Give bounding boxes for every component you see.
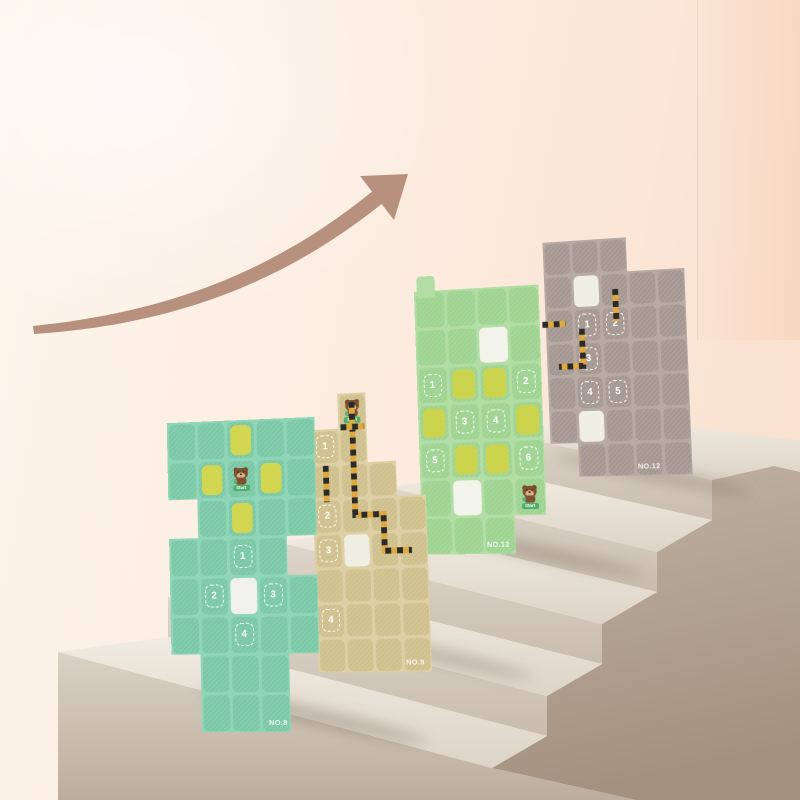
board-cutout bbox=[287, 535, 318, 575]
board-cell bbox=[201, 654, 231, 693]
board-number-label: NO.8 bbox=[269, 718, 288, 727]
numbered-target-cell: 5 bbox=[425, 449, 444, 472]
board-cell: Start bbox=[226, 459, 256, 499]
start-label: Start bbox=[344, 416, 361, 423]
board-cell bbox=[343, 567, 372, 603]
board-cell bbox=[196, 421, 226, 461]
board-cutout bbox=[396, 459, 426, 496]
board-cell bbox=[507, 284, 540, 324]
numbered-target-cell: 2 bbox=[204, 584, 223, 607]
board-cell bbox=[605, 408, 635, 443]
board-cell bbox=[259, 614, 290, 654]
board-cell bbox=[477, 324, 510, 364]
board-cell: 4 bbox=[575, 375, 604, 410]
numbered-target-cell: 3 bbox=[455, 410, 474, 434]
board-cell bbox=[511, 400, 544, 439]
board-cell bbox=[372, 601, 402, 637]
product-photo-scene: 12345NO.12 123456StartNO.12 Start1234NO.… bbox=[0, 0, 800, 800]
numbered-target-cell: 4 bbox=[486, 409, 505, 433]
board-cell bbox=[599, 271, 628, 307]
board-cell: Start bbox=[513, 476, 546, 515]
puzzle-board-3: 123456StartNO.12 bbox=[414, 284, 548, 554]
board-cell bbox=[288, 574, 319, 614]
board-cell bbox=[259, 654, 290, 693]
board-cell bbox=[400, 565, 430, 601]
board-cutout bbox=[515, 515, 548, 554]
board-cell bbox=[284, 417, 315, 457]
board-cutout bbox=[172, 693, 202, 732]
board-cell bbox=[168, 461, 198, 501]
board-cell bbox=[544, 275, 573, 310]
board-cell: 4 bbox=[316, 603, 345, 638]
board-cell bbox=[398, 530, 428, 566]
board-cell bbox=[452, 516, 484, 554]
board-cell bbox=[508, 323, 541, 363]
board-cell bbox=[660, 371, 690, 406]
board-cell bbox=[602, 339, 631, 374]
numbered-target-cell: 2 bbox=[605, 311, 624, 335]
board-cell bbox=[201, 693, 231, 732]
board-cell: 2 bbox=[509, 361, 542, 401]
bear-start-piece: Start bbox=[342, 397, 362, 423]
numbered-target-cell: 4 bbox=[580, 380, 599, 404]
board-cell: 3 bbox=[258, 575, 289, 615]
board-cell bbox=[658, 337, 688, 373]
board-cell bbox=[197, 499, 227, 539]
bear-icon bbox=[342, 397, 362, 417]
board-cell bbox=[230, 654, 260, 693]
board-cell bbox=[228, 576, 258, 616]
board-cell bbox=[285, 456, 316, 496]
board-cutout bbox=[626, 235, 656, 271]
numbered-target-cell: 4 bbox=[235, 623, 254, 646]
numbered-target-cell: 1 bbox=[316, 435, 335, 459]
board-cell bbox=[397, 495, 427, 531]
board-cell bbox=[542, 241, 571, 276]
board-cell bbox=[475, 286, 508, 326]
board-cell bbox=[446, 326, 478, 365]
board-cell: 1 bbox=[227, 537, 257, 577]
board-cutout bbox=[394, 389, 424, 426]
board-cell bbox=[342, 532, 371, 568]
board-cell: 4 bbox=[229, 615, 259, 654]
board-cutout bbox=[654, 234, 684, 270]
board-cell bbox=[167, 422, 197, 462]
puzzle-board-4: 12345NO.12 bbox=[542, 234, 692, 478]
board-cell bbox=[338, 427, 367, 463]
board-cell bbox=[370, 531, 400, 567]
board-cell bbox=[481, 439, 514, 478]
board-cell: 4 bbox=[479, 401, 512, 440]
numbered-target-cell: 5 bbox=[608, 379, 627, 403]
numbered-target-cell: 1 bbox=[578, 313, 597, 337]
board-cell bbox=[169, 538, 199, 577]
board-cell: 6 bbox=[512, 438, 545, 477]
board-cell: 1 bbox=[573, 307, 602, 342]
board-cutout bbox=[289, 653, 320, 693]
puzzle-board-1: Start1234NO.8 bbox=[167, 417, 321, 732]
board-cell bbox=[546, 342, 575, 377]
board-cell bbox=[341, 497, 370, 533]
board-cell bbox=[663, 440, 693, 475]
board-cell bbox=[606, 442, 636, 477]
board-cell bbox=[447, 364, 479, 403]
board-cell bbox=[450, 440, 482, 479]
numbered-target-cell: 4 bbox=[321, 609, 340, 632]
board-cell bbox=[255, 457, 286, 497]
board-cell bbox=[545, 308, 574, 343]
start-label: Start bbox=[233, 485, 250, 492]
numbered-target-cell: 2 bbox=[318, 504, 337, 528]
board-cell bbox=[255, 418, 286, 458]
board-cell bbox=[286, 496, 317, 536]
board-cell bbox=[198, 537, 228, 577]
numbered-target-cell: 1 bbox=[423, 373, 442, 397]
board-cell bbox=[318, 637, 347, 672]
board-cell bbox=[171, 616, 201, 655]
board-cell bbox=[369, 496, 399, 532]
board-cutout bbox=[551, 443, 580, 477]
board-cell bbox=[257, 536, 288, 576]
board-cell bbox=[570, 239, 599, 274]
board-cell bbox=[631, 372, 661, 407]
board-cell bbox=[401, 601, 431, 637]
board-cutout bbox=[366, 426, 396, 462]
numbered-target-cell: 3 bbox=[319, 539, 338, 562]
board-number-label: NO.9 bbox=[406, 657, 425, 666]
board-cell bbox=[656, 268, 686, 304]
board-cell bbox=[630, 338, 660, 373]
board-cell: 3 bbox=[574, 341, 603, 376]
board-cell bbox=[288, 614, 319, 654]
board-number-label: NO.12 bbox=[487, 540, 510, 549]
board-cell bbox=[657, 302, 687, 338]
board-cell: 2 bbox=[600, 305, 629, 340]
board-cutout bbox=[365, 390, 395, 427]
board-cell bbox=[368, 461, 398, 497]
board-cell bbox=[578, 442, 607, 476]
numbered-target-cell: 3 bbox=[263, 583, 282, 606]
bear-icon bbox=[231, 466, 251, 486]
board-cell bbox=[227, 498, 257, 538]
board-cutout bbox=[395, 424, 425, 461]
board-cell bbox=[482, 477, 515, 516]
board-cutout bbox=[168, 499, 198, 539]
start-label: Start bbox=[522, 502, 539, 508]
board-cell bbox=[548, 376, 577, 411]
board-cell: 3 bbox=[448, 402, 480, 441]
board-cell: 2 bbox=[313, 498, 342, 534]
numbered-target-cell: 2 bbox=[516, 369, 536, 393]
board-cutout bbox=[290, 693, 321, 732]
board-cell bbox=[445, 288, 477, 328]
board-cell: Start bbox=[337, 392, 366, 428]
board-cell bbox=[345, 637, 374, 672]
board-cutout bbox=[171, 654, 201, 693]
board-cell bbox=[315, 568, 344, 603]
board-cell bbox=[633, 407, 663, 442]
board-cell: 5 bbox=[603, 373, 633, 408]
bear-start-piece: Start bbox=[231, 466, 251, 492]
board-cell bbox=[197, 460, 227, 500]
board-cell bbox=[231, 693, 261, 732]
board-cell bbox=[549, 409, 578, 443]
puzzle-board-2: Start1234NO.9 bbox=[309, 389, 431, 673]
board-cell bbox=[312, 463, 341, 499]
board-cell bbox=[170, 577, 200, 616]
board-cell bbox=[661, 406, 691, 441]
bear-start-piece: Start bbox=[519, 483, 540, 509]
board-cell bbox=[344, 602, 373, 637]
board-cell bbox=[577, 408, 606, 443]
board-top-tab bbox=[416, 276, 435, 299]
board-cell bbox=[629, 304, 659, 340]
board-cell bbox=[478, 363, 511, 402]
numbered-target-cell: 3 bbox=[579, 346, 598, 370]
board-cell bbox=[256, 497, 287, 537]
board-cell bbox=[225, 419, 255, 459]
board-cell bbox=[627, 270, 657, 306]
numbered-target-cell: 1 bbox=[233, 545, 252, 568]
board-cell bbox=[340, 462, 369, 498]
board-cell bbox=[200, 615, 230, 654]
board-cell bbox=[415, 328, 447, 367]
bear-icon bbox=[519, 483, 539, 503]
board-cell: 3 bbox=[314, 533, 343, 569]
board-number-label: NO.12 bbox=[638, 461, 661, 471]
board-cell bbox=[371, 566, 401, 602]
board-cell bbox=[571, 273, 600, 308]
board-cell bbox=[451, 478, 483, 517]
board-cell bbox=[598, 237, 627, 273]
numbered-target-cell: 6 bbox=[519, 446, 539, 470]
board-cell: 2 bbox=[199, 576, 229, 615]
board-cell bbox=[374, 637, 404, 673]
